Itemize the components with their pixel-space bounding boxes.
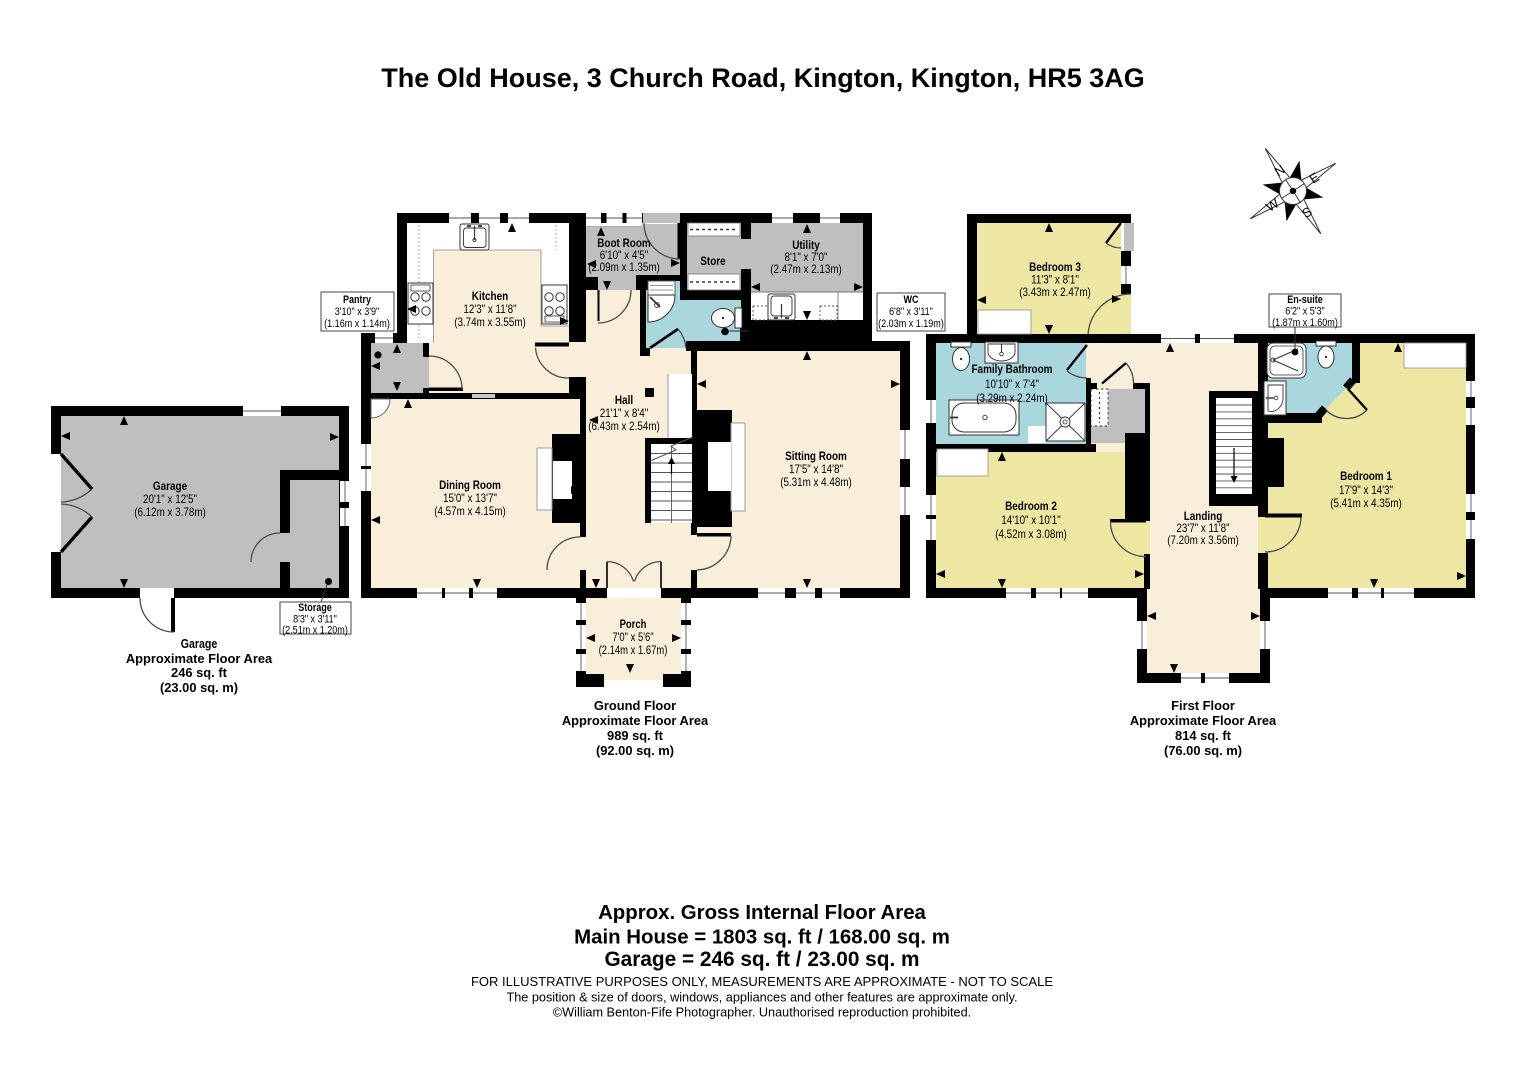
svg-text:20'1" x 12'5": 20'1" x 12'5" — [143, 492, 197, 506]
svg-text:(1.87m x 1.60m): (1.87m x 1.60m) — [1272, 317, 1338, 329]
svg-text:(4.57m x 4.15m): (4.57m x 4.15m) — [434, 504, 506, 518]
svg-text:The Old House, 3 Church Road,: The Old House, 3 Church Road, Kington, K… — [381, 63, 1145, 93]
svg-text:Garage: Garage — [153, 479, 187, 493]
svg-text:12'3" x 11'8": 12'3" x 11'8" — [463, 302, 516, 316]
svg-text:(3.43m x 2.47m): (3.43m x 2.47m) — [1019, 285, 1091, 299]
svg-text:(3.74m x 3.55m): (3.74m x 3.55m) — [454, 315, 526, 329]
svg-text:10'10" x 7'4": 10'10" x 7'4" — [985, 377, 1039, 391]
svg-text:Approximate Floor Area: Approximate Floor Area — [126, 651, 273, 666]
svg-text:17'5" x 14'8": 17'5" x 14'8" — [789, 462, 843, 476]
svg-text:3'10" x 3'9": 3'10" x 3'9" — [335, 306, 380, 318]
svg-text:Family Bathroom: Family Bathroom — [972, 362, 1053, 376]
svg-text:Bedroom 1: Bedroom 1 — [1340, 469, 1392, 483]
svg-text:Bedroom 2: Bedroom 2 — [1005, 499, 1057, 513]
svg-text:(1.16m x 1.14m): (1.16m x 1.14m) — [324, 318, 390, 330]
svg-text:Garage = 246 sq. ft / 23.00 sq: Garage = 246 sq. ft / 23.00 sq. m — [605, 948, 920, 971]
svg-text:(5.41m x 4.35m): (5.41m x 4.35m) — [1330, 496, 1402, 510]
svg-text:15'0" x 13'7": 15'0" x 13'7" — [443, 491, 497, 505]
svg-text:Garage: Garage — [181, 636, 218, 651]
svg-text:814 sq. ft: 814 sq. ft — [1175, 728, 1232, 743]
svg-text:(6.12m x 3.78m): (6.12m x 3.78m) — [134, 505, 206, 519]
svg-text:FOR ILLUSTRATIVE PURPOSES ONLY: FOR ILLUSTRATIVE PURPOSES ONLY, MEASUREM… — [471, 974, 1053, 989]
svg-text:(4.52m x 3.08m): (4.52m x 3.08m) — [995, 527, 1067, 541]
svg-text:Sitting Room: Sitting Room — [785, 449, 847, 463]
svg-text:Kitchen: Kitchen — [472, 289, 508, 303]
svg-text:(2.09m x 1.35m): (2.09m x 1.35m) — [588, 260, 660, 274]
svg-text:17'9" x 14'3": 17'9" x 14'3" — [1339, 483, 1393, 497]
svg-text:The position & size of doors,: The position & size of doors, windows, a… — [506, 991, 1017, 1005]
svg-text:21'1" x 8'4": 21'1" x 8'4" — [600, 406, 649, 420]
svg-text:6'2" x 5'3": 6'2" x 5'3" — [1285, 306, 1324, 318]
svg-text:Approximate Floor Area: Approximate Floor Area — [562, 713, 709, 728]
svg-text:Dining Room: Dining Room — [439, 478, 501, 492]
svg-text:(7.20m x 3.56m): (7.20m x 3.56m) — [1167, 533, 1239, 547]
svg-text:246 sq. ft: 246 sq. ft — [171, 665, 228, 680]
svg-text:Hall: Hall — [615, 393, 633, 407]
svg-text:©William Benton-Fife Photograp: ©William Benton-Fife Photographer. Unaut… — [553, 1006, 971, 1020]
svg-text:Pantry: Pantry — [343, 294, 372, 306]
svg-text:(3.29m x 2.24m): (3.29m x 2.24m) — [976, 391, 1048, 405]
svg-text:WC: WC — [904, 294, 919, 306]
svg-text:(92.00 sq. m): (92.00 sq. m) — [596, 743, 674, 758]
svg-text:Storage: Storage — [298, 602, 332, 614]
svg-text:(5.31m x 4.48m): (5.31m x 4.48m) — [780, 475, 852, 489]
svg-text:(2.14m x 1.67m): (2.14m x 1.67m) — [599, 645, 668, 657]
svg-text:Approximate Floor Area: Approximate Floor Area — [1130, 713, 1277, 728]
svg-text:(76.00 sq. m): (76.00 sq. m) — [1164, 743, 1242, 758]
svg-text:7'0" x 5'6": 7'0" x 5'6" — [612, 632, 653, 644]
svg-text:(6.43m x 2.54m): (6.43m x 2.54m) — [588, 419, 660, 433]
svg-text:(2.47m x 2.13m): (2.47m x 2.13m) — [770, 262, 842, 276]
svg-text:Porch: Porch — [620, 619, 647, 631]
svg-text:Store: Store — [700, 254, 726, 268]
svg-text:Main House = 1803 sq. ft / 168: Main House = 1803 sq. ft / 168.00 sq. m — [574, 927, 950, 949]
svg-text:Approx. Gross Internal Floor A: Approx. Gross Internal Floor Area — [598, 902, 926, 924]
svg-text:14'10" x 10'1": 14'10" x 10'1" — [1001, 513, 1060, 527]
svg-text:(2.51m x 1.20m): (2.51m x 1.20m) — [282, 625, 348, 637]
svg-text:En-suite: En-suite — [1287, 294, 1323, 306]
svg-text:Ground Floor: Ground Floor — [594, 698, 676, 713]
svg-text:6'8" x 3'11": 6'8" x 3'11" — [889, 306, 933, 318]
svg-text:(2.03m x 1.19m): (2.03m x 1.19m) — [878, 318, 944, 330]
svg-text:(23.00 sq. m): (23.00 sq. m) — [160, 680, 238, 695]
svg-text:First Floor: First Floor — [1171, 698, 1235, 713]
svg-text:989 sq. ft: 989 sq. ft — [607, 728, 664, 743]
